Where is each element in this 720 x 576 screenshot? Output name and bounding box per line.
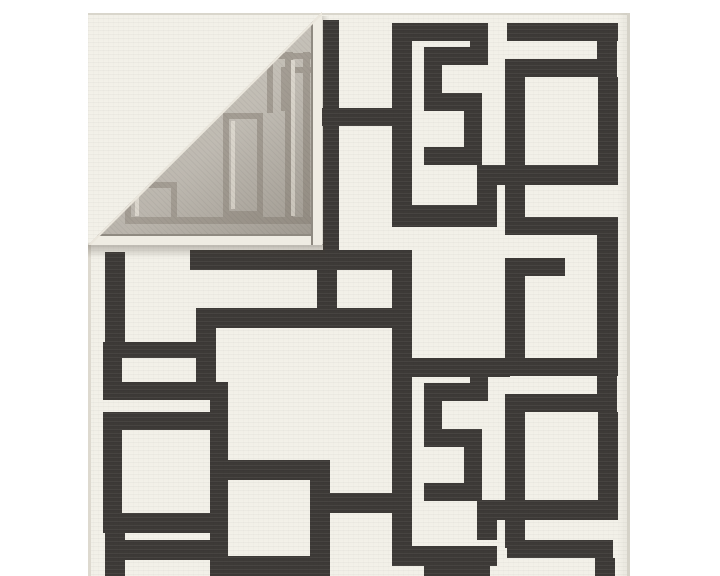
pattern-stroke — [505, 217, 618, 235]
pattern-stroke — [228, 556, 310, 576]
pattern-stroke — [505, 412, 525, 500]
pattern-stroke — [424, 429, 482, 447]
pattern-stroke — [125, 540, 213, 560]
pattern-stroke — [507, 23, 618, 41]
pattern-stroke — [412, 358, 510, 377]
pattern-stroke — [505, 77, 525, 165]
pattern-stroke — [595, 558, 615, 576]
pattern-stroke — [103, 382, 228, 400]
fold-edge-binding-bottom — [88, 236, 322, 245]
pattern-stroke — [424, 147, 482, 165]
pattern-stroke — [105, 533, 125, 576]
pattern-stroke — [210, 533, 228, 576]
pattern-stroke — [196, 308, 394, 328]
pattern-stroke — [392, 205, 497, 227]
pattern-stroke — [392, 546, 497, 566]
fold-edge-binding-right — [313, 12, 322, 245]
pattern-stroke — [477, 165, 618, 185]
pattern-stroke — [424, 47, 488, 65]
pattern-stroke — [424, 65, 442, 93]
pattern-stroke — [507, 358, 618, 376]
pattern-stroke — [310, 460, 330, 576]
pattern-stroke — [598, 77, 618, 165]
pattern-stroke — [210, 382, 228, 533]
pattern-stroke — [317, 250, 337, 308]
fold-shadow-bottom — [88, 244, 325, 258]
pattern-stroke — [412, 23, 488, 41]
pattern-stroke — [330, 493, 392, 513]
pattern-stroke — [477, 500, 618, 520]
pattern-stroke — [597, 235, 618, 358]
pattern-stroke — [507, 540, 613, 558]
fold-shadow-right — [322, 16, 329, 245]
pattern-stroke — [505, 185, 525, 217]
pattern-stroke — [505, 276, 525, 358]
pattern-stroke — [105, 252, 125, 342]
pattern-stroke — [103, 513, 225, 533]
rug-front-pattern — [88, 13, 630, 576]
pattern-stroke — [505, 59, 617, 77]
pattern-stroke — [505, 394, 617, 412]
pattern-stroke — [477, 520, 497, 540]
pattern-stroke — [424, 93, 482, 111]
pattern-stroke — [424, 383, 488, 401]
pattern-stroke — [424, 483, 482, 501]
pattern-stroke — [477, 185, 497, 205]
pattern-stroke — [392, 358, 412, 554]
pattern-stroke — [424, 401, 442, 429]
pattern-stroke — [392, 23, 412, 205]
rug-front-face — [88, 13, 630, 576]
pattern-stroke — [392, 250, 412, 358]
product-photo-canvas — [0, 0, 720, 576]
pattern-stroke — [598, 412, 618, 500]
pattern-stroke — [505, 258, 565, 276]
